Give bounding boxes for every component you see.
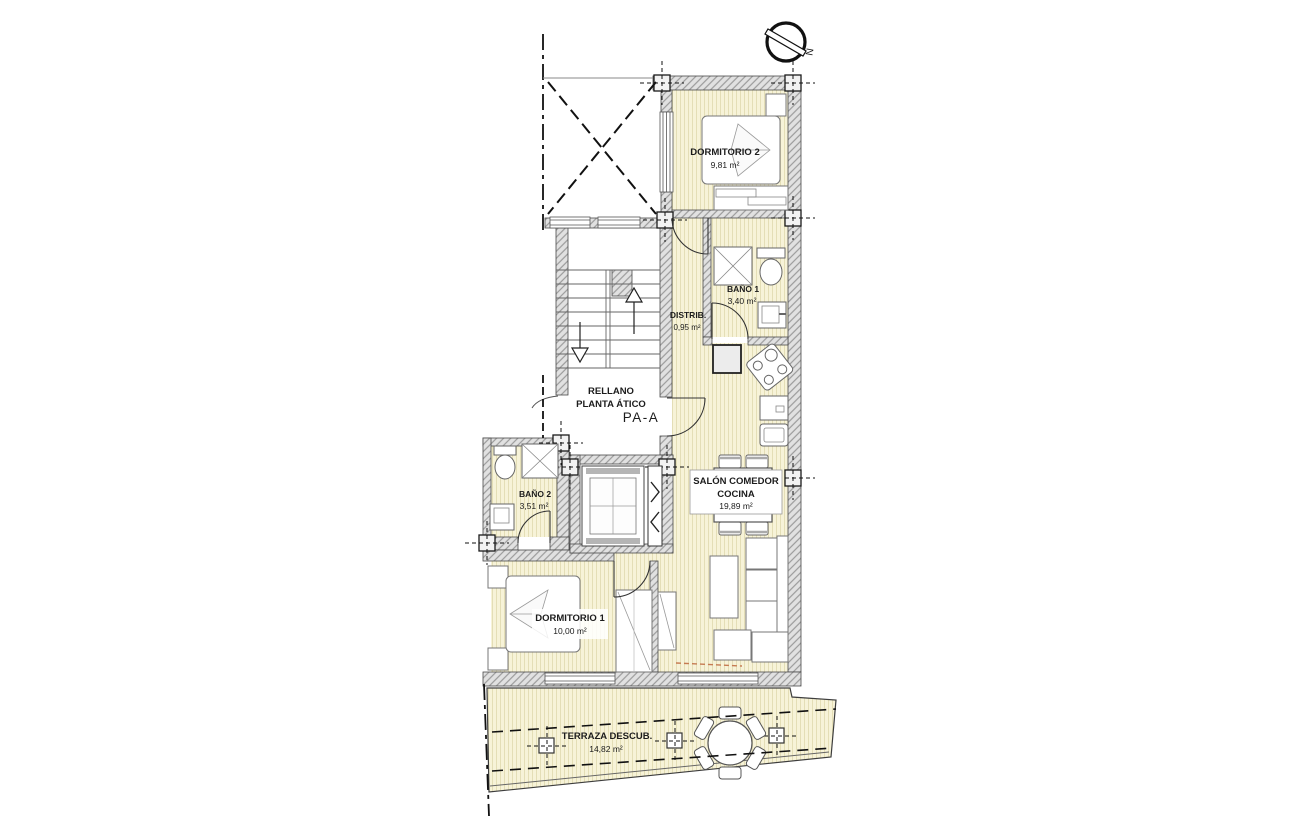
area-salon: 19,89 m² <box>719 501 753 511</box>
kitchen-column <box>713 345 741 373</box>
window-salon-bottom <box>678 673 758 684</box>
sofa-backrest <box>777 536 788 632</box>
coffee-table <box>710 556 738 618</box>
nightstand <box>766 94 786 116</box>
area-dormitorio-1: 10,00 m² <box>553 626 587 636</box>
label-dormitorio-2: DORMITORIO 2 <box>690 147 760 158</box>
label-rellano-1: RELLANO <box>588 386 634 397</box>
wall-bano2-left <box>483 438 491 550</box>
wall-core-right <box>660 218 672 397</box>
wall-dorm2-bottom <box>672 210 788 218</box>
area-terraza: 14,82 m² <box>589 744 623 754</box>
stair-down-arrow <box>572 322 588 362</box>
north-arrow-icon: N <box>765 23 815 61</box>
window-dorm2-left <box>660 112 673 192</box>
elevator-door-top <box>586 468 640 474</box>
window-core-top-a <box>550 217 590 228</box>
wall-elevator-top <box>570 455 673 464</box>
area-bano-1: 3,40 m² <box>728 296 757 306</box>
label-salon-2: COCINA <box>717 489 755 500</box>
area-distrib: 0,95 m² <box>673 323 700 332</box>
shower-bano2 <box>522 444 558 478</box>
dining-chair <box>746 455 768 468</box>
terrace-round-table <box>708 721 752 765</box>
label-dormitorio-1: DORMITORIO 1 <box>535 613 605 624</box>
wall-core-right-stub <box>660 436 672 455</box>
shower-bano1 <box>714 247 752 285</box>
label-terraza: TERRAZA DESCUB. <box>562 731 652 742</box>
sofa-cushion <box>746 538 777 569</box>
elevator-door-bottom <box>586 538 640 544</box>
label-rellano-2: PLANTA ÁTICO <box>576 399 646 410</box>
wall-right <box>788 90 801 672</box>
wall-core-left <box>556 228 568 395</box>
label-salon-1: SALÓN COMEDOR <box>693 475 779 487</box>
area-bano-2: 3,51 m² <box>520 501 549 511</box>
floor-plan-drawing: DORMITORIO 2 9,81 m² BAÑO 1 3,40 m² DIST… <box>0 0 1290 840</box>
vent-shaft <box>648 466 662 546</box>
wall-dorm2-left-a <box>661 90 672 112</box>
wardrobe-dorm1 <box>616 590 652 672</box>
wall-stair-core <box>612 270 632 296</box>
dining-chair <box>719 455 741 468</box>
unit-label-pa-a: PA-A <box>623 410 660 425</box>
wall-bano1-bottom-a <box>703 337 712 345</box>
label-distrib: DISTRIB. <box>670 310 706 320</box>
sofa-cushion <box>746 570 777 601</box>
toilet-bano2 <box>494 446 516 479</box>
floor-plan-page: DORMITORIO 2 9,81 m² BAÑO 1 3,40 m² DIST… <box>0 0 1290 840</box>
sofa-cushion <box>746 601 777 632</box>
mirror-cabinet <box>658 592 676 650</box>
nightstand <box>488 648 508 670</box>
nightstand <box>488 566 508 588</box>
wardrobe-dorm2 <box>714 186 788 210</box>
label-bano-1: BAÑO 1 <box>727 284 759 294</box>
elevator <box>582 466 662 546</box>
sofa-chaise <box>714 630 751 660</box>
window-dorm1-bottom <box>545 673 615 684</box>
window-core-top-b <box>598 217 640 228</box>
wall-bano2-bottom-b <box>550 537 569 550</box>
wall-bano1-bottom-b <box>748 337 788 345</box>
dining-chair <box>719 522 741 535</box>
sink-bano2 <box>490 504 514 530</box>
landing-side-door-arc <box>532 396 558 408</box>
sink-bano1 <box>758 302 786 328</box>
area-dormitorio-2: 9,81 m² <box>711 160 740 170</box>
label-bano-2: BAÑO 2 <box>519 489 551 499</box>
sofa-corner-seat <box>752 632 788 662</box>
dining-chair <box>746 522 768 535</box>
